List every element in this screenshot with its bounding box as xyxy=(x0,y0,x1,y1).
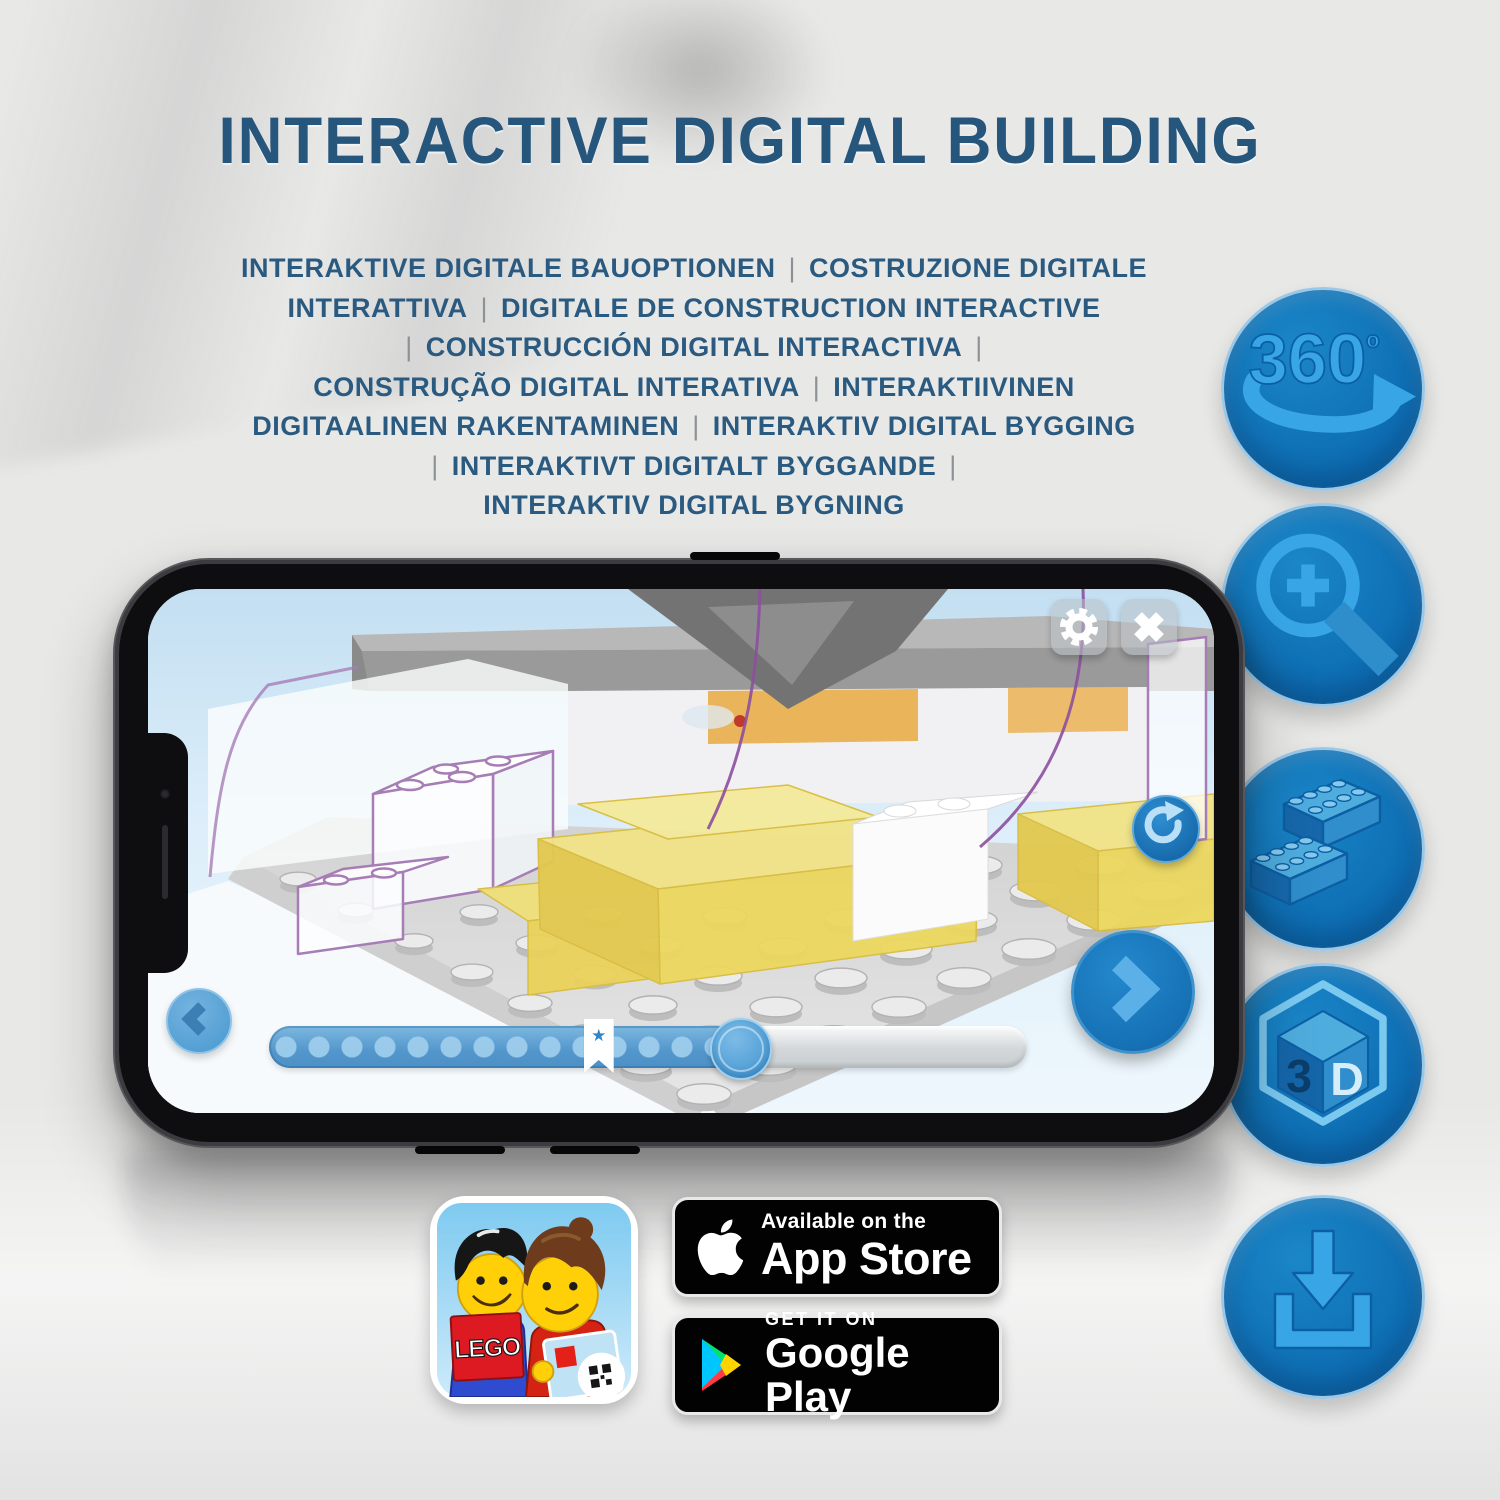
phone-mockup: ★ xyxy=(113,558,1245,1148)
subtitle-line: INTERATTIVA|DIGITALE DE CONSTRUCTION INT… xyxy=(0,289,1388,329)
next-step-button[interactable] xyxy=(1071,930,1195,1054)
page-title: INTERACTIVE DIGITAL BUILDING xyxy=(44,102,1435,178)
3d-label-d: D xyxy=(1330,1053,1364,1105)
google-play-icon xyxy=(697,1336,747,1394)
download-icon xyxy=(1224,1198,1422,1396)
chevron-left-icon xyxy=(168,990,226,1048)
feature-zoom xyxy=(1221,503,1425,707)
360-rotation-icon: 360º xyxy=(1224,290,1422,488)
subtitle-line: CONSTRUÇÃO DIGITAL INTERATIVA|INTERAKTII… xyxy=(0,368,1388,408)
feature-3d-view: 3 D xyxy=(1221,963,1425,1167)
feature-brick-options xyxy=(1221,747,1425,951)
zoom-in-icon xyxy=(1224,506,1422,704)
app-screen: ★ xyxy=(148,589,1214,1113)
subtitle-line: INTERAKTIVE DIGITALE BAUOPTIONEN|COSTRUZ… xyxy=(0,249,1388,289)
settings-button[interactable] xyxy=(1051,599,1107,655)
3d-label-3: 3 xyxy=(1286,1050,1312,1102)
build-progress-slider[interactable]: ★ xyxy=(269,1026,1027,1068)
app-store-badge[interactable]: Available on the App Store xyxy=(672,1197,1002,1297)
phone-volume-down-button xyxy=(550,1146,640,1154)
apple-icon xyxy=(697,1219,743,1275)
previous-step-button[interactable] xyxy=(166,988,232,1054)
phone-power-button xyxy=(690,552,780,560)
subtitle-line: |CONSTRUCCIÓN DIGITAL INTERACTIVA| xyxy=(0,328,1388,368)
subtitle-line: DIGITAALINEN RAKENTAMINEN|INTERAKTIV DIG… xyxy=(0,407,1388,447)
rotate-icon xyxy=(1134,797,1194,857)
subtitle-block: INTERAKTIVE DIGITALE BAUOPTIONEN|COSTRUZ… xyxy=(0,249,1388,526)
feature-download xyxy=(1221,1195,1425,1399)
subtitle-line: INTERAKTIV DIGITAL BYGNING xyxy=(0,486,1388,526)
rotate-model-button[interactable] xyxy=(1132,795,1200,863)
google-play-badge[interactable]: GET IT ON Google Play xyxy=(672,1315,1002,1415)
slider-thumb[interactable] xyxy=(710,1018,772,1080)
subtitle-line: |INTERAKTIVT DIGITALT BYGGANDE| xyxy=(0,447,1388,487)
lego-app-icon[interactable]: LEGO xyxy=(430,1196,638,1404)
google-play-name: Google Play xyxy=(765,1331,999,1419)
chevron-right-icon xyxy=(1074,933,1186,1045)
earpiece-speaker xyxy=(162,825,168,899)
front-camera xyxy=(160,789,170,799)
app-store-tagline: Available on the xyxy=(761,1211,972,1233)
lego-logo-text: LEGO xyxy=(454,1334,522,1364)
3d-view-icon: 3 D xyxy=(1224,966,1422,1164)
brick-icon xyxy=(1224,750,1422,948)
feature-360-rotation: 360º xyxy=(1221,287,1425,491)
app-store-name: App Store xyxy=(761,1235,972,1282)
phone-notch xyxy=(146,733,188,973)
close-icon xyxy=(1121,599,1177,655)
google-play-tagline: GET IT ON xyxy=(765,1310,999,1329)
close-button[interactable] xyxy=(1121,599,1177,655)
slider-fill xyxy=(269,1026,739,1068)
gear-icon xyxy=(1051,599,1107,655)
phone-volume-up-button xyxy=(415,1146,505,1154)
360-label: 360º xyxy=(1249,319,1380,398)
lego-minifigures-art: LEGO xyxy=(437,1203,631,1397)
